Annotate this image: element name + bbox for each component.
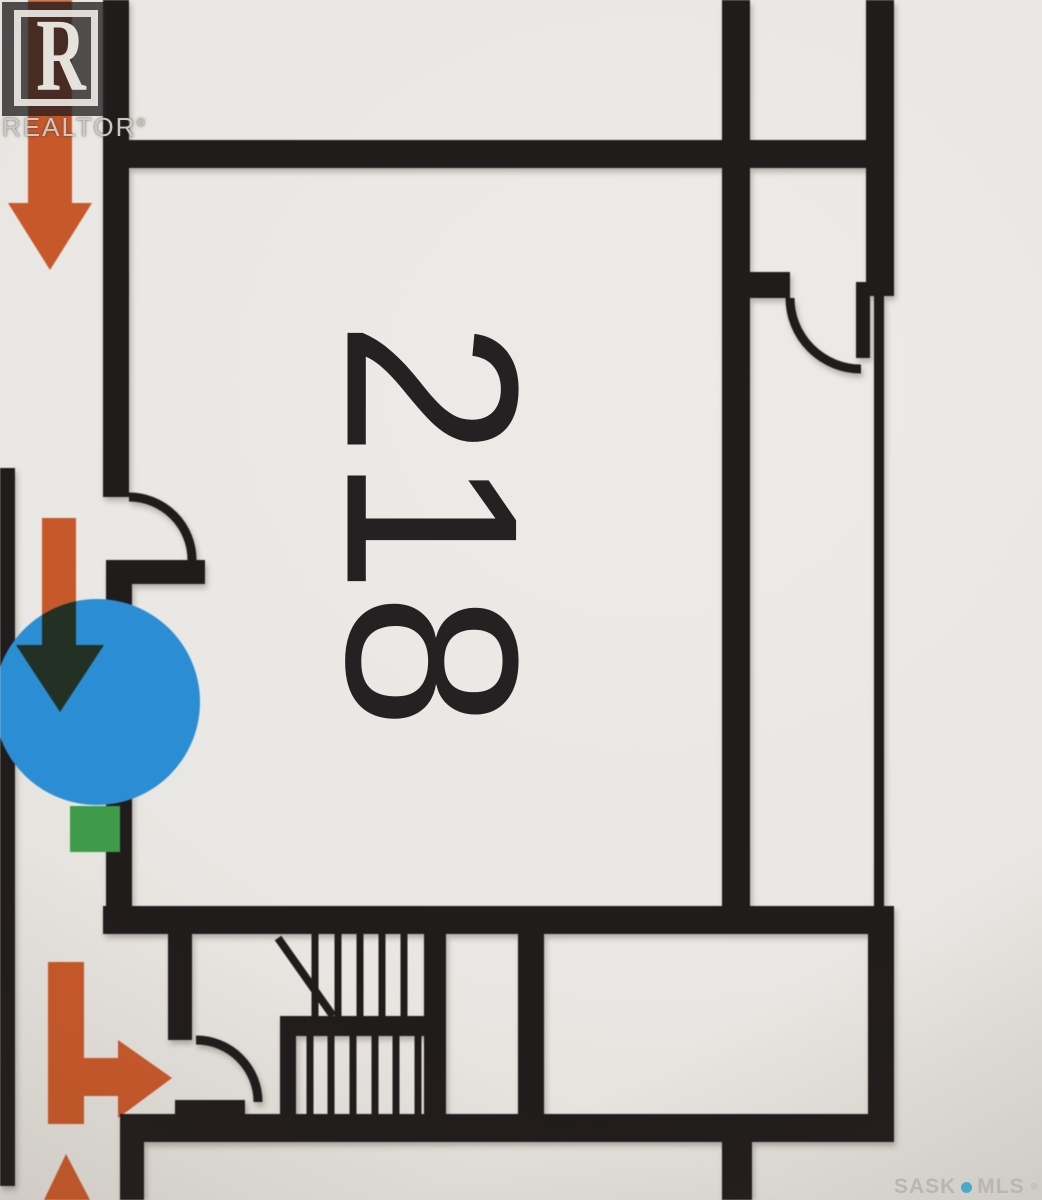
location-marker-circle [0, 599, 200, 805]
arrow-down-right-bottom [48, 962, 172, 1124]
room218-west-door-arc [129, 497, 192, 560]
arrow-partial-bottom-edge [44, 1154, 90, 1200]
left-bottom-wall [120, 1142, 144, 1200]
ne-door-stub [748, 272, 790, 298]
room218-bottom-wall [103, 906, 894, 934]
room-number-label: 218 [310, 321, 555, 730]
realtor-watermark: R REALTOR® [2, 2, 126, 142]
left-edge-wall [0, 468, 15, 1186]
stair-door-arc [196, 1040, 258, 1102]
stair-door-stub [175, 1100, 245, 1114]
markers-layer [0, 599, 200, 852]
small-room-right-wall [518, 934, 544, 1114]
registered-mark-icon: ® [136, 115, 147, 129]
stair-corridor-left-wall [168, 934, 192, 1040]
registered-mark-icon: ® [1031, 1182, 1039, 1193]
realtor-text: REALTOR [2, 112, 136, 142]
stair-mid-divider [282, 1016, 430, 1036]
sask-text: SASK [894, 1175, 956, 1199]
room218-top-wall [103, 140, 894, 168]
location-marker-square [70, 806, 120, 852]
right-wall-lower [868, 906, 894, 1142]
ne-thin-partition [874, 296, 884, 906]
mls-text: MLS [977, 1175, 1024, 1199]
mls-dot-icon [961, 1182, 972, 1193]
realtor-wordmark: REALTOR® [2, 112, 132, 143]
room218-right-wall [722, 0, 750, 934]
ne-corridor-right-wall [866, 0, 894, 296]
stair-break-line [278, 938, 333, 1016]
sask-mls-watermark: SASKMLS® [894, 1175, 1039, 1199]
bottom-center-wall-stub [722, 1142, 752, 1200]
realtor-r-icon: R [36, 8, 76, 104]
bottom-wall [120, 1114, 894, 1142]
room218-left-jog-wall [106, 560, 205, 584]
ne-door-leaf [856, 282, 870, 358]
ne-door-arc [790, 298, 861, 369]
floor-plan-photo: 218 R REALTOR® SASKMLS® [0, 0, 1042, 1200]
